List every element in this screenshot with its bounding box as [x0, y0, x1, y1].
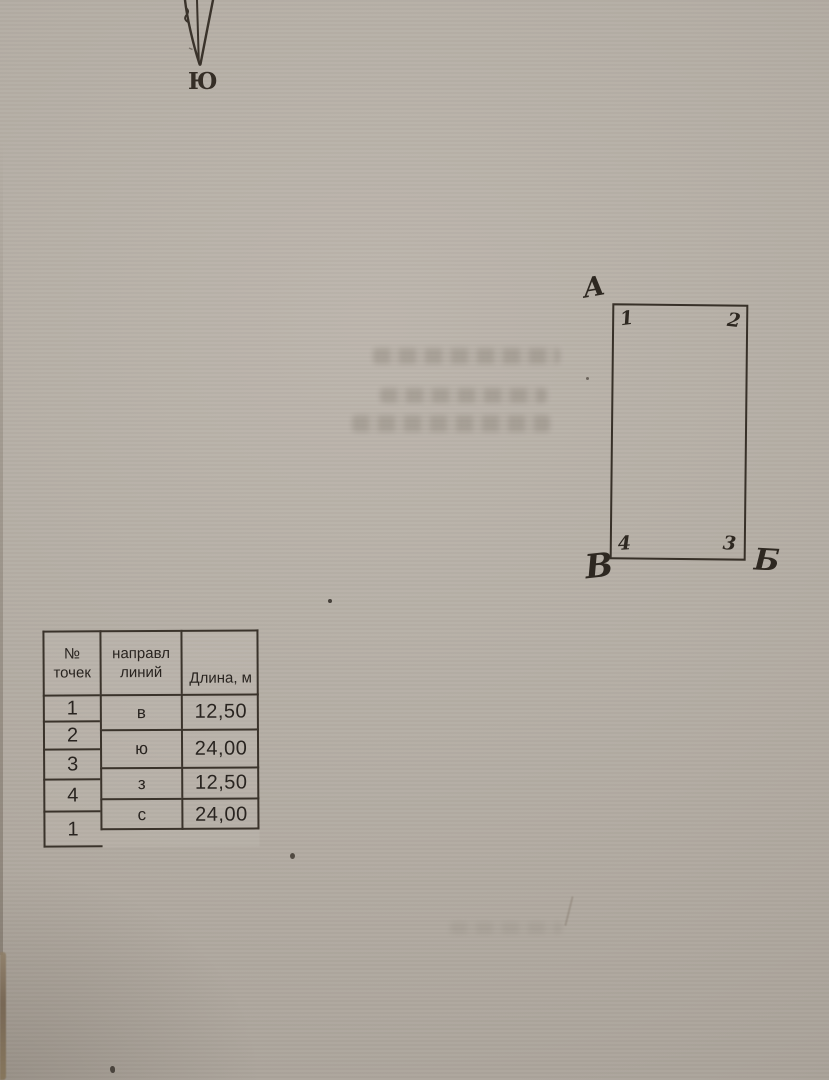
south-label: Ю [188, 68, 216, 95]
scanned-survey-document: Ю 1 2 3 4 А В Б № точек направл линий Дл… [0, 0, 829, 1080]
corner-point-3: 3 [722, 534, 737, 554]
length-cell: 12,50 [181, 693, 259, 728]
paper-speck [586, 377, 589, 380]
corner-point-2: 2 [726, 311, 741, 331]
parcel-label-v: В [583, 548, 614, 584]
direction-cell: с [100, 798, 181, 830]
table-header-length: Длина, м [180, 629, 258, 693]
paper-edge [0, 952, 6, 1080]
point-cell: 4 [43, 778, 100, 810]
length-cell: 12,50 [181, 766, 259, 797]
table-header-points: № точек [42, 630, 99, 694]
direction-cell: в [100, 694, 181, 729]
paper-speck [290, 853, 295, 859]
corner-point-4: 4 [617, 534, 631, 554]
paper-crease [564, 896, 573, 925]
table-header-direction: направл линий [99, 630, 180, 694]
bleed-through-smudge [450, 922, 562, 934]
corner-point-1: 1 [619, 309, 635, 330]
paper-edge [0, 140, 3, 955]
bleed-through-smudge [352, 415, 550, 432]
direction-cell: ю [100, 729, 181, 767]
table-border [256, 629, 259, 829]
point-cell: 1 [43, 694, 100, 720]
point-cell: 3 [43, 748, 100, 778]
point-cell: 2 [43, 720, 100, 748]
length-cell: 24,00 [181, 728, 259, 766]
table-border [44, 845, 103, 847]
direction-cell: з [100, 767, 181, 798]
table-border [100, 827, 259, 830]
paper-speck [110, 1066, 115, 1073]
parcel-label-a: А [581, 272, 607, 302]
bleed-through-smudge [373, 348, 560, 364]
paper-speck [328, 599, 332, 603]
survey-table: № точек направл линий Длина, м 1 2 3 4 1… [42, 629, 259, 847]
point-cell: 1 [43, 810, 100, 847]
bleed-through-smudge [380, 388, 547, 403]
length-cell: 24,00 [181, 797, 259, 829]
parcel-sketch: 1 2 3 4 [610, 303, 749, 560]
parcel-label-b: Б [753, 545, 780, 576]
